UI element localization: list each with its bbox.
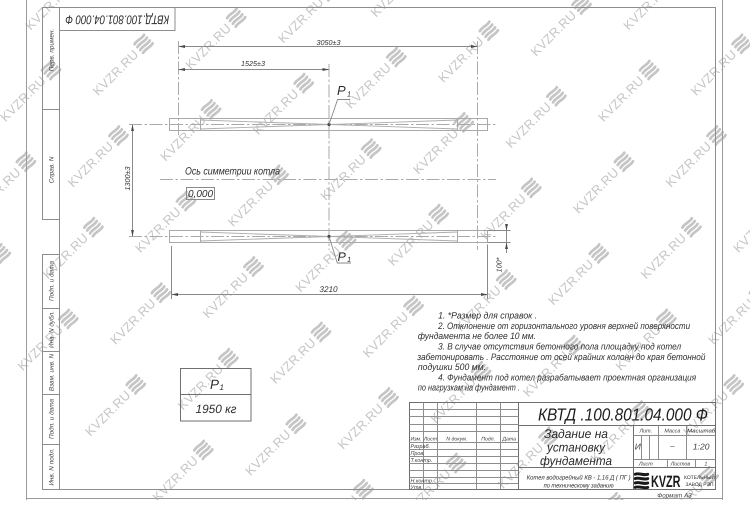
svg-text:Взам. инв. N: Взам. инв. N — [49, 354, 56, 392]
svg-text:КВТД .100.801.04.000 Ф: КВТД .100.801.04.000 Ф — [538, 405, 708, 425]
svg-text:Задание на: Задание на — [544, 427, 608, 441]
svg-text:100*: 100* — [495, 257, 504, 272]
svg-text:КВТД.100.801.04.000 Ф: КВТД.100.801.04.000 Ф — [65, 13, 169, 27]
svg-text:1: 1 — [704, 461, 707, 467]
svg-text:Пров.: Пров. — [411, 451, 425, 457]
svg-text:по нагрузкам на фундамент .: по нагрузкам на фундамент . — [418, 383, 520, 393]
svg-text:3050±3: 3050±3 — [317, 38, 341, 47]
svg-text:Масштаб: Масштаб — [687, 429, 716, 435]
svg-text:2. Отклонение от горизонтал: 2. Отклонение от горизонтального уровня … — [437, 321, 690, 331]
svg-text:0,000: 0,000 — [188, 189, 213, 200]
svg-text:P: P — [210, 377, 219, 392]
svg-text:P: P — [337, 83, 346, 98]
svg-text:Масса: Масса — [664, 429, 680, 435]
svg-text:Подп.: Подп. — [481, 437, 495, 443]
svg-text:Листов: Листов — [670, 461, 691, 467]
svg-text:Инв. N подл.: Инв. N подл. — [49, 448, 56, 485]
svg-text:Н.контр.: Н.контр. — [411, 479, 434, 485]
svg-text:Лит.: Лит. — [638, 429, 652, 435]
svg-text:Т.контр.: Т.контр. — [411, 458, 433, 464]
svg-text:1: 1 — [347, 90, 351, 99]
svg-text:И: И — [635, 442, 642, 452]
svg-text:Перв. примен.: Перв. примен. — [49, 29, 56, 71]
svg-text:Подп. и дата: Подп. и дата — [49, 261, 56, 301]
svg-text:4. Фундамент под котел раз: 4. Фундамент под котел разрабатывает про… — [438, 373, 696, 383]
svg-text:1525±3: 1525±3 — [241, 59, 265, 68]
svg-text:1300±3: 1300±3 — [123, 167, 132, 191]
svg-text:установку: установку — [546, 440, 606, 454]
svg-text:KVZR: KVZR — [651, 473, 681, 491]
svg-text:Формат АЗ: Формат АЗ — [657, 492, 692, 499]
svg-text:Утв.: Утв. — [410, 485, 423, 491]
svg-text:1. *Размер для справок .: 1. *Размер для справок . — [438, 310, 537, 320]
svg-text:Ось симметрии котла: Ось симметрии котла — [185, 166, 280, 178]
svg-text:1: 1 — [347, 255, 351, 264]
svg-text:забетонировать . Расстояние: забетонировать . Расстояние от осей край… — [417, 352, 706, 362]
svg-text:1950 кг: 1950 кг — [196, 402, 237, 416]
svg-text:–: – — [669, 442, 675, 451]
svg-text:по техническому заданию: по техническому заданию — [544, 483, 614, 490]
svg-text:3210: 3210 — [319, 285, 338, 294]
svg-text:Подп. и дата: Подп. и дата — [49, 399, 56, 439]
svg-text:КОТЕЛЬНЫЙ: КОТЕЛЬНЫЙ — [684, 474, 715, 481]
svg-text:Изм.: Изм. — [410, 437, 421, 443]
svg-text:подушки 500 мм.: подушки 500 мм. — [418, 362, 486, 372]
svg-text:Дата: Дата — [501, 437, 516, 443]
svg-text:Справ. N: Справ. N — [49, 156, 56, 183]
svg-text:1: 1 — [220, 383, 224, 392]
svg-text:N докум.: N докум. — [446, 437, 467, 443]
svg-text:фундамента не более 10 мм.: фундамента не более 10 мм. — [418, 331, 536, 341]
svg-text:3. В случае отсутствия бет: 3. В случае отсутствия бетонного пола пл… — [438, 342, 682, 352]
svg-text:Лист: Лист — [423, 437, 438, 443]
svg-text:1:20: 1:20 — [693, 442, 710, 452]
svg-text:Лист: Лист — [638, 461, 653, 467]
svg-text:Инв. N дубл.: Инв. N дубл. — [49, 311, 56, 348]
svg-text:Котел водогрейный КВ - 1,16 Д: Котел водогрейный КВ - 1,16 Д ( ПГ ) — [527, 475, 631, 482]
svg-text:Разраб.: Разраб. — [411, 444, 431, 450]
svg-text:P: P — [338, 250, 347, 264]
svg-text:ЗАВОД РЭП: ЗАВОД РЭП — [686, 482, 714, 488]
svg-text:фундамента: фундамента — [540, 454, 612, 468]
